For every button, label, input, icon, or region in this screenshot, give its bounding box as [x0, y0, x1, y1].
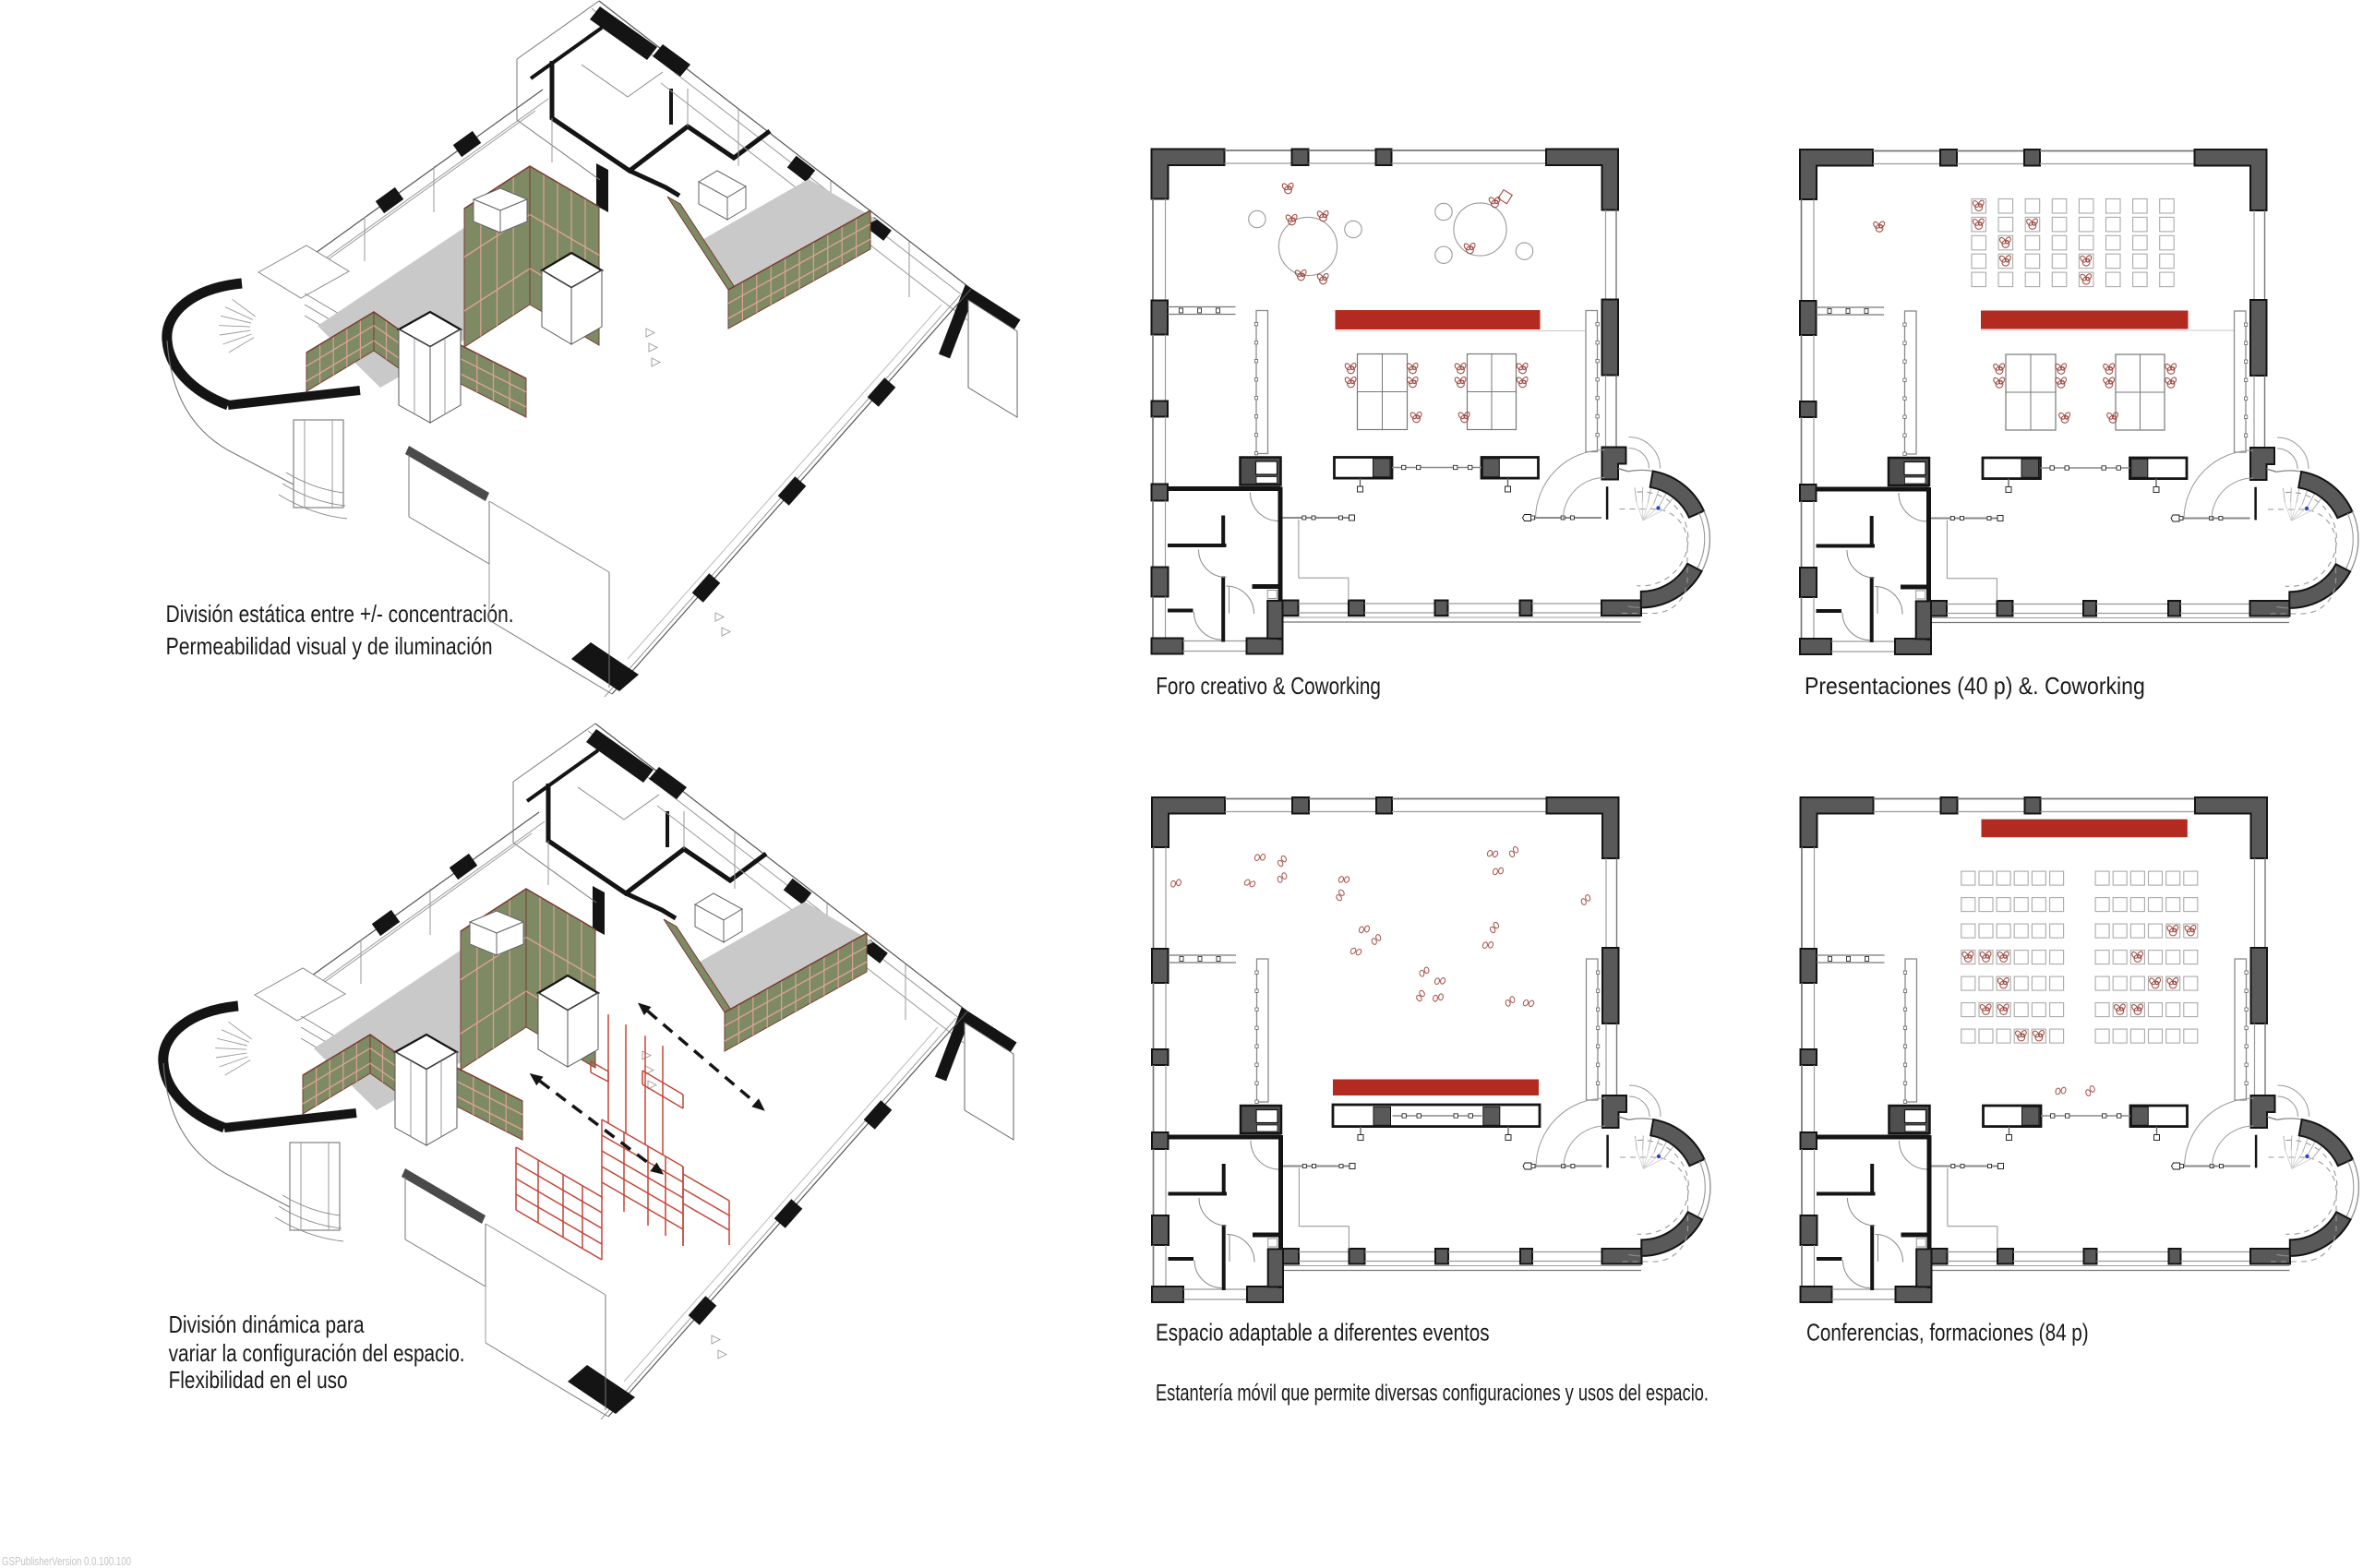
svg-text:Espacio adaptable a diferentes: Espacio adaptable a diferentes eventos — [1156, 1319, 1490, 1347]
svg-text:Estantería móvil que permite d: Estantería móvil que permite diversas co… — [1156, 1381, 1709, 1406]
svg-text:División dinámica para: División dinámica para — [169, 1311, 365, 1338]
svg-text:División estática entre +/- co: División estática entre +/- concentració… — [166, 600, 514, 628]
svg-text:variar la configuración del es: variar la configuración del espacio. — [169, 1339, 465, 1367]
svg-text:Flexibilidad en el uso: Flexibilidad en el uso — [169, 1366, 348, 1394]
svg-text:Permeabilidad visual y de ilum: Permeabilidad visual y de iluminación — [166, 632, 493, 660]
svg-text:Presentaciones (40 p) &. Cowor: Presentaciones (40 p) &. Coworking — [1805, 672, 2145, 700]
svg-text:GSPublisherVersion 0.0.100.100: GSPublisherVersion 0.0.100.100 — [2, 1554, 131, 1568]
svg-text:Conferencias, formaciones (84: Conferencias, formaciones (84 p) — [1806, 1319, 2089, 1347]
svg-text:Foro creativo & Coworking: Foro creativo & Coworking — [1156, 672, 1381, 700]
